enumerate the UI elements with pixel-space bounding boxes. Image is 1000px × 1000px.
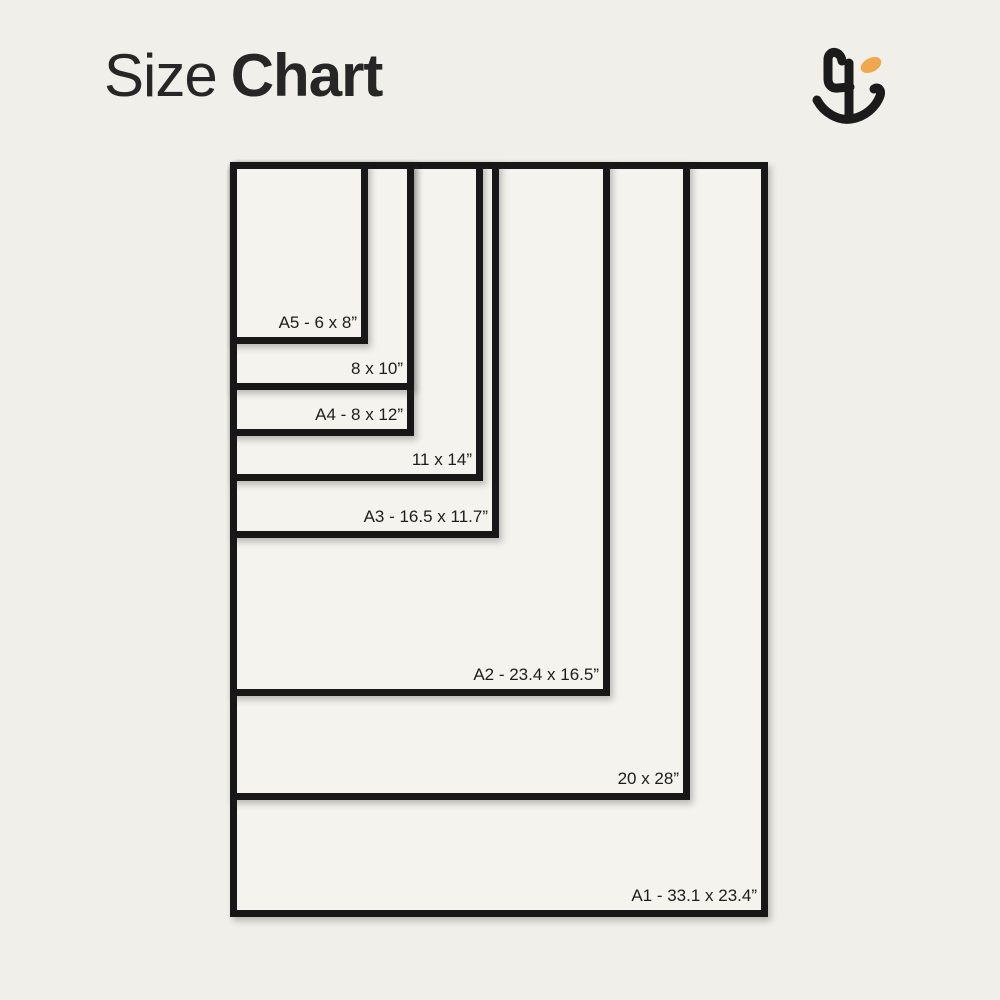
canvas: SizeChart A5 - 6 x 8”8 x 10”A4 - 8 x 12”… bbox=[0, 0, 1000, 1000]
size-label-11x14: 11 x 14” bbox=[412, 450, 472, 470]
size-label-a2: A2 - 23.4 x 16.5” bbox=[473, 665, 599, 685]
size-label-a5: A5 - 6 x 8” bbox=[279, 313, 357, 333]
size-label-a3: A3 - 16.5 x 11.7” bbox=[364, 507, 488, 527]
size-label-8x10: 8 x 10” bbox=[351, 359, 403, 379]
size-label-a1: A1 - 33.1 x 23.4” bbox=[631, 886, 757, 906]
size-chart: A5 - 6 x 8”8 x 10”A4 - 8 x 12”11 x 14”A3… bbox=[0, 0, 1000, 1000]
size-label-a4: A4 - 8 x 12” bbox=[315, 405, 403, 425]
size-label-20x28: 20 x 28” bbox=[618, 769, 679, 789]
